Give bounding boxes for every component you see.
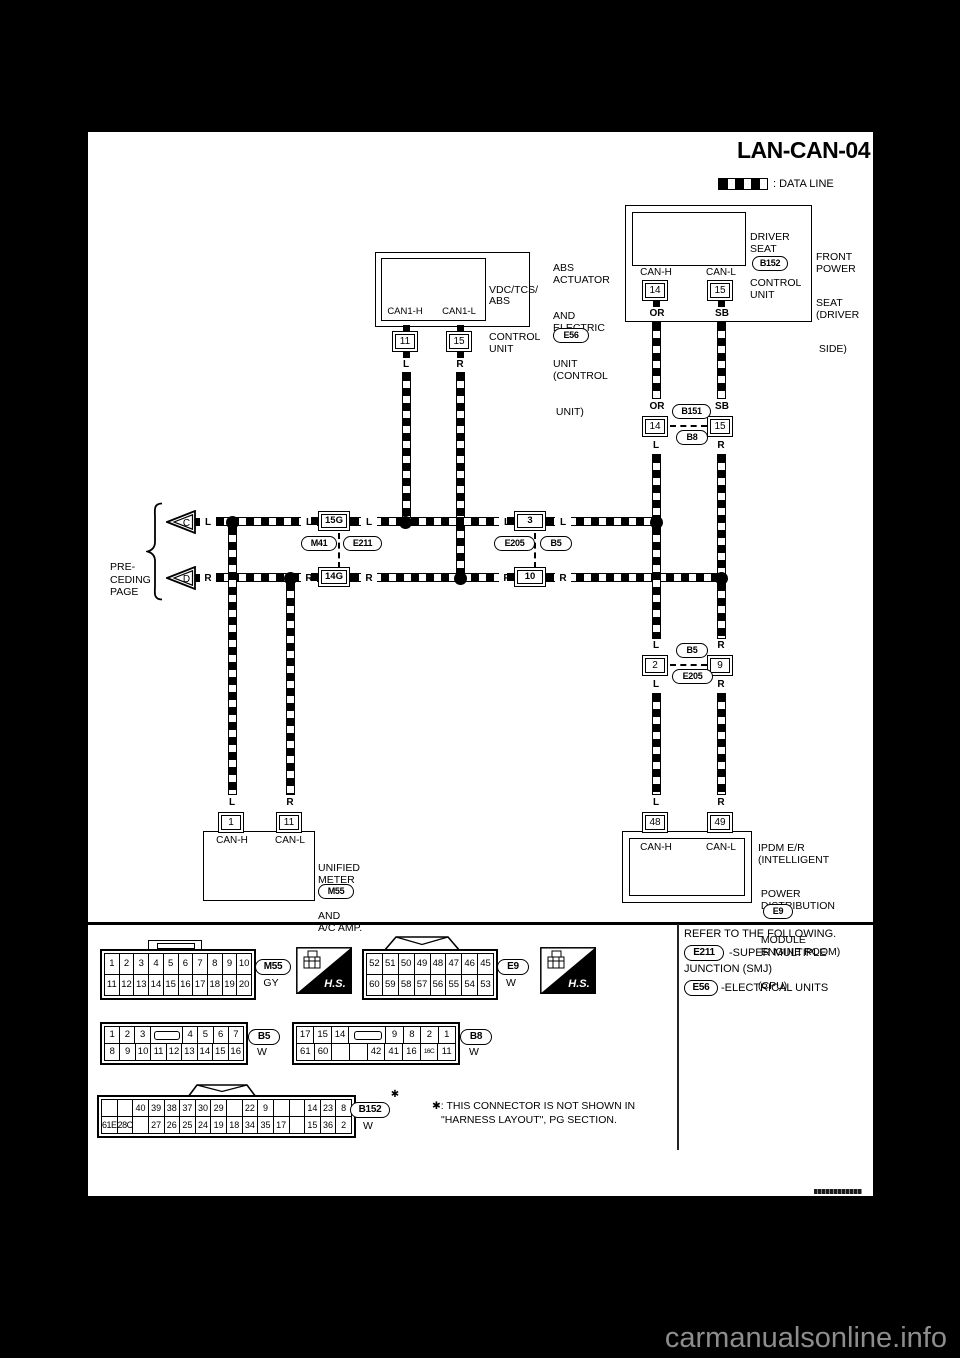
connector-cavity: 46 <box>461 953 478 975</box>
meter-pin-11: 11 <box>276 812 302 833</box>
connector-cavity: 56 <box>430 974 447 996</box>
connector-code-e9: E9 <box>763 904 793 919</box>
connector-cavity: 17 <box>296 1026 314 1044</box>
meter-l-wire <box>228 526 237 795</box>
watermark: carmanualsonline.info <box>665 1322 947 1355</box>
wire-color-l: L <box>648 639 664 652</box>
refer-title: REFER TO THE FOLLOWING. <box>684 928 836 940</box>
ipdm-pin-49: 49 <box>707 812 733 833</box>
connector-cavity: 1 <box>104 1026 120 1044</box>
wire-color-l: L <box>555 516 571 529</box>
connector-cavity: 17 <box>273 1116 290 1134</box>
connector-cavity <box>349 1043 368 1061</box>
connector-cavity: 22 <box>242 1099 259 1117</box>
connector-code-e56: E56 <box>684 980 718 996</box>
smj-terminal-15g: 15G <box>318 511 350 531</box>
ipdm-r-wire-lower <box>717 693 726 795</box>
connector-cavity: 9 <box>119 1043 135 1061</box>
figure-code <box>814 1189 862 1194</box>
connector-cavity: 14 <box>197 1043 213 1061</box>
connector-cavity <box>331 1043 350 1061</box>
connector-cavity: 16 <box>178 974 194 996</box>
connector-cavity: 42 <box>367 1043 386 1061</box>
connector-cavity: 60 <box>314 1043 333 1061</box>
connector-code-m41: M41 <box>301 536 337 551</box>
j1-r-wire <box>717 454 726 576</box>
connector-cavity <box>132 1116 149 1134</box>
connector-cavity: 10 <box>135 1043 151 1061</box>
abs-pin-15: 15 <box>446 331 472 352</box>
connector-cavity: 51 <box>382 953 399 975</box>
connector-cavity: 48 <box>430 953 447 975</box>
footnote-line-2: "HARNESS LAYOUT", PG SECTION. <box>441 1114 617 1126</box>
connector-cavity: 28C <box>117 1116 134 1134</box>
connector-view-b152: 4039383730292291423861E28C27262524191834… <box>97 1095 356 1138</box>
wire-color-r: R <box>555 572 571 585</box>
wire-color-or: OR <box>645 400 669 413</box>
connector-code-m55: M55 <box>255 959 291 975</box>
connector-code-b5: B5 <box>676 643 708 658</box>
connector-cavity: 34 <box>242 1116 259 1134</box>
connector-cavity: 11 <box>150 1043 166 1061</box>
svg-text:H.S.: H.S. <box>568 978 589 990</box>
junction-dot <box>650 516 663 529</box>
connector-color-w: W <box>497 977 525 989</box>
connector-view-e9: 52515049484746456059585756555453 <box>362 949 498 1000</box>
connector-cavity: 58 <box>398 974 415 996</box>
abs-r-wire <box>456 372 465 577</box>
connector-cavity: 24 <box>195 1116 212 1134</box>
meter-r-wire <box>286 582 295 795</box>
connector-cavity <box>150 1026 183 1044</box>
svg-text:H.S.: H.S. <box>324 978 345 990</box>
b151-pin-15: 15 <box>707 416 733 437</box>
connector-code-e9: E9 <box>497 959 529 975</box>
connector-cavity: 3 <box>134 1026 150 1044</box>
connector-view-m55: 1234567891011121314151617181920 <box>100 949 256 1000</box>
refer-item-2: -ELECTRICAL UNITS <box>721 982 828 994</box>
off-page-arrow-c: C <box>166 510 196 534</box>
ipdm-r-wire-upper <box>717 582 726 639</box>
wire-color-or: OR <box>645 307 669 320</box>
connector-cavity: 16 <box>228 1043 244 1061</box>
connector-color-gy: GY <box>255 977 287 989</box>
connector-cavity: 1 <box>438 1026 456 1044</box>
connector-cavity: 47 <box>445 953 462 975</box>
connector-cavity: 18 <box>207 974 223 996</box>
meter-can-l-label: CAN-L <box>266 835 314 847</box>
j2-pin-2: 2 <box>642 655 668 676</box>
connector-code-b5: B5 <box>248 1029 280 1045</box>
connector-cavity: 2 <box>119 1026 135 1044</box>
connector-cavity: 19 <box>222 974 238 996</box>
front-power-seat-label: FRONTPOWER SEAT(DRIVER SIDE) <box>816 229 859 379</box>
junction-dot <box>715 572 728 585</box>
wire-color-sb: SB <box>710 400 734 413</box>
footnote-line-1: ✱: THIS CONNECTOR IS NOT SHOWN IN <box>432 1100 635 1112</box>
wire-color-l: L <box>648 678 664 691</box>
connector-cavity: 4 <box>148 953 164 975</box>
connector-view-b5: 12345678910111213141516 <box>100 1022 248 1065</box>
connector-cavity: 4 <box>182 1026 198 1044</box>
connector-cavity: 29 <box>210 1099 227 1117</box>
svg-text:C: C <box>183 518 190 529</box>
panel-divider <box>677 924 679 1150</box>
abs-pin-11: 11 <box>392 331 418 352</box>
connector-cavity: 45 <box>477 953 494 975</box>
connector-cavity: 49 <box>414 953 431 975</box>
meter-can-h-label: CAN-H <box>208 835 256 847</box>
connector-cavity: 27 <box>148 1116 165 1134</box>
svg-text:D: D <box>183 574 190 585</box>
connector-cavity: 20 <box>236 974 252 996</box>
connector-cavity: 12 <box>119 974 135 996</box>
meter-pin-1: 1 <box>218 812 244 833</box>
connector-cavity: 6 <box>213 1026 229 1044</box>
connector-cavity: 11 <box>104 974 120 996</box>
connector-cavity: 5 <box>163 953 179 975</box>
connector-code-b151: B151 <box>672 404 711 419</box>
connector-cavity: 7 <box>228 1026 244 1044</box>
seat-pin-15: 15 <box>707 280 733 301</box>
data-line-legend-swatch <box>718 178 768 190</box>
driver-seat-inner-box <box>632 212 746 266</box>
connector-cavity <box>289 1099 306 1117</box>
connector-code-e211: E211 <box>684 945 724 961</box>
connector-cavity: 38 <box>164 1099 181 1117</box>
connector-cavity: 35 <box>257 1116 274 1134</box>
can-h-wire <box>652 322 661 399</box>
ipdm-can-h-label: CAN-H <box>632 842 680 854</box>
connector-cavity: 17 <box>192 974 208 996</box>
connector-view-b8: 1715149821616042411616C11 <box>292 1022 460 1065</box>
page-title: LAN-CAN-04 <box>737 137 870 164</box>
connector-cavity: 25 <box>179 1116 196 1134</box>
wire-color-r: R <box>200 572 216 585</box>
wire-color-r: R <box>361 572 377 585</box>
wire-color-l: L <box>361 516 377 529</box>
wire-color-l: L <box>648 796 664 809</box>
connector-cavity: 37 <box>179 1099 196 1117</box>
connector-cavity: 14 <box>148 974 164 996</box>
terminal-10: 10 <box>514 567 546 587</box>
refer-item-1b: JUNCTION (SMJ) <box>684 963 772 975</box>
connector-cavity: 60 <box>366 974 383 996</box>
scanned-manual-page: { "page": { "title": "LAN-CAN-04", "wate… <box>0 0 960 1358</box>
connector-cavity: 2 <box>420 1026 438 1044</box>
connector-code-b5: B5 <box>540 536 572 551</box>
connector-cavity <box>273 1099 290 1117</box>
connector-cavity: 40 <box>132 1099 149 1117</box>
connector-cavity: 3 <box>133 953 149 975</box>
connector-cavity: 10 <box>236 953 252 975</box>
wire-color-r: R <box>713 678 729 691</box>
connector-cavity: 9 <box>385 1026 403 1044</box>
connector-cavity <box>101 1099 118 1117</box>
connector-cavity <box>117 1099 134 1117</box>
connector-cavity: 12 <box>166 1043 182 1061</box>
connector-cavity: 18 <box>226 1116 243 1134</box>
connector-cavity: 14 <box>331 1026 349 1044</box>
connector-color-w: W <box>248 1046 276 1058</box>
connector-cavity: 8 <box>207 953 223 975</box>
connector-cavity: 8 <box>403 1026 421 1044</box>
abs-can1-l-label: CAN1-L <box>436 306 482 318</box>
b151-pin-14: 14 <box>642 416 668 437</box>
abs-can1-h-label: CAN1-H <box>382 306 428 318</box>
connector-cavity: 57 <box>414 974 431 996</box>
refer-item-1: -SUPER MULTIPLE <box>729 947 827 959</box>
connector-cavity: 2 <box>335 1116 352 1134</box>
connector-code-b152: B152 <box>752 256 788 271</box>
wire-color-r: R <box>713 639 729 652</box>
connector-cavity: 41 <box>384 1043 403 1061</box>
connector-cavity <box>226 1099 243 1117</box>
connector-cavity <box>289 1116 306 1134</box>
wire-color-l: L <box>648 439 664 452</box>
connector-cavity: 11 <box>437 1043 456 1061</box>
connector-cavity: 15 <box>163 974 179 996</box>
junction-dot <box>399 516 412 529</box>
connector-cavity: 61 <box>296 1043 315 1061</box>
star-marker: ✱ <box>388 1089 402 1101</box>
connector-cavity: 14 <box>304 1099 321 1117</box>
connector-cavity: 6 <box>178 953 194 975</box>
connector-cavity: 8 <box>104 1043 120 1061</box>
connector-cavity: 19 <box>210 1116 227 1134</box>
ipdm-l-wire-lower <box>652 693 661 795</box>
can-l-bus <box>200 517 660 526</box>
connector-cavity: 53 <box>477 974 494 996</box>
abs-unit-label: VDC/TCS/ABS CONTROLUNIT <box>489 261 540 379</box>
connector-color-w: W <box>354 1120 382 1132</box>
wire-color-l: L <box>398 358 414 371</box>
connector-cavity: 1 <box>104 953 120 975</box>
connector-cavity: 59 <box>382 974 399 996</box>
wire-color-l: L <box>224 796 240 809</box>
seat-pin-14: 14 <box>642 280 668 301</box>
connector-cavity: 2 <box>119 953 135 975</box>
connector-code-b152: B152 <box>350 1102 390 1118</box>
seat-can-h-label: CAN-H <box>634 267 678 279</box>
connector-cavity: 13 <box>133 974 149 996</box>
connector-cavity: 23 <box>320 1099 337 1117</box>
connector-cavity: 26 <box>164 1116 181 1134</box>
connector-cavity: 54 <box>461 974 478 996</box>
terminal-3: 3 <box>514 511 546 531</box>
smj-terminal-14g: 14G <box>318 567 350 587</box>
ipdm-can-l-label: CAN-L <box>697 842 745 854</box>
connector-color-w: W <box>460 1046 488 1058</box>
junction-dot <box>226 516 239 529</box>
seat-can-l-label: CAN-L <box>699 267 743 279</box>
connector-cavity: 15 <box>212 1043 228 1061</box>
abs-l-wire <box>402 372 411 520</box>
connector-code-e56: E56 <box>553 328 589 343</box>
wire-color-r: R <box>713 439 729 452</box>
connector-cavity: 55 <box>445 974 462 996</box>
connector-cavity: 61E <box>101 1116 118 1134</box>
j1-l-wire <box>652 454 661 520</box>
connector-code-m55: M55 <box>318 884 354 899</box>
connector-cavity: 7 <box>192 953 208 975</box>
wire-color-r: R <box>452 358 468 371</box>
connector-cavity: 9 <box>257 1099 274 1117</box>
connector-code-e211: E211 <box>343 536 382 551</box>
ipdm-l-wire-upper <box>652 526 661 639</box>
wire-color-l: L <box>200 516 216 529</box>
off-page-arrow-d: D <box>166 566 196 590</box>
connector-cavity: 52 <box>366 953 383 975</box>
connector-cavity: 36 <box>320 1116 337 1134</box>
connector-cavity <box>348 1026 386 1044</box>
data-line-legend-label: : DATA LINE <box>773 178 834 190</box>
hs-view-icon: H.S. <box>540 947 596 994</box>
connector-cavity: 16C <box>420 1043 439 1061</box>
connector-cavity: 15 <box>304 1116 321 1134</box>
connector-cavity: 13 <box>181 1043 197 1061</box>
connector-code-e205: E205 <box>672 669 713 684</box>
wire-color-sb: SB <box>710 307 734 320</box>
preceding-page-label: PRE-CEDINGPAGE <box>110 536 151 624</box>
connector-cavity: 30 <box>195 1099 212 1117</box>
ipdm-pin-48: 48 <box>642 812 668 833</box>
wire-color-r: R <box>713 796 729 809</box>
diagram-page: LAN-CAN-04 : DATA LINE DRIVERSEAT CONTRO… <box>88 132 873 1196</box>
junction-dot <box>284 572 297 585</box>
connector-code-e205: E205 <box>494 536 535 551</box>
connector-code-b8: B8 <box>676 430 708 445</box>
connector-code-b8: B8 <box>460 1029 492 1045</box>
connector-cavity: 50 <box>398 953 415 975</box>
section-divider <box>88 922 873 925</box>
can-l-wire <box>717 322 726 399</box>
wire-color-r: R <box>282 796 298 809</box>
connector-cavity: 39 <box>148 1099 165 1117</box>
connector-cavity: 9 <box>222 953 238 975</box>
connector-cavity: 15 <box>313 1026 331 1044</box>
connector-cavity: 5 <box>197 1026 213 1044</box>
junction-dot <box>454 572 467 585</box>
connector-cavity: 16 <box>402 1043 421 1061</box>
